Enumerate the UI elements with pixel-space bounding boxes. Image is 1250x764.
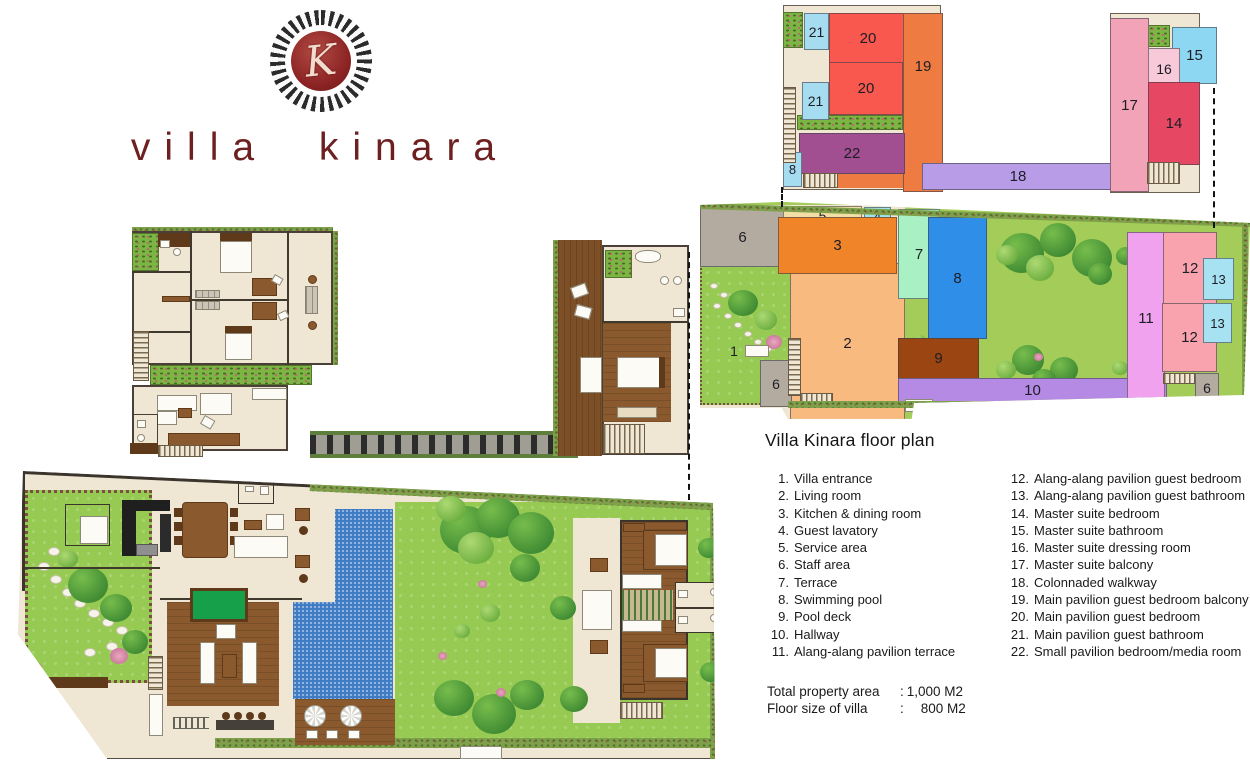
room-18: 18 (922, 163, 1114, 190)
porch (38, 677, 108, 688)
daybed (580, 357, 602, 393)
legend-item-number: 19. (1002, 591, 1029, 608)
legend-item-number: 16. (1002, 539, 1029, 556)
stairs (133, 331, 149, 381)
bed (655, 534, 687, 566)
daybed (622, 620, 662, 632)
stairs (148, 656, 163, 690)
bush-icon (700, 662, 722, 682)
toilet (137, 420, 146, 428)
plot-wall (22, 471, 25, 591)
flower-bush-icon (28, 662, 42, 674)
planter-pot (590, 558, 608, 572)
villa-kinara-logo: K (270, 10, 372, 112)
legend-item-label: Hallway (794, 626, 840, 643)
property-totals: Total property area:1,000 M2Floor size o… (767, 683, 966, 717)
bathroom (132, 414, 158, 446)
room-number-label: 21 (808, 94, 824, 108)
entrance-gate (460, 746, 502, 759)
chair (174, 508, 182, 517)
dashed-connector-left (688, 252, 690, 500)
chair (174, 536, 182, 545)
table-round (308, 275, 317, 284)
stool (246, 712, 254, 720)
appliance (136, 544, 158, 556)
legend-item-number: 12. (1002, 470, 1029, 487)
legend-item-label: Small pavilion bedroom/media room (1034, 643, 1241, 660)
legend-item-label: Colonnaded walkway (1034, 574, 1157, 591)
chair (230, 508, 238, 517)
room-number-label: 10 (1024, 383, 1041, 398)
bush-icon (698, 538, 720, 558)
kitchen-island (160, 514, 171, 552)
deck-table (216, 624, 236, 639)
dresser (623, 684, 645, 693)
kitchen-counter (122, 500, 170, 511)
legend-item-label: Living room (794, 487, 861, 504)
legend-item-number: 14. (1002, 505, 1029, 522)
planter-box (783, 12, 803, 48)
legend-item-number: 13. (1002, 487, 1029, 504)
legend-item-label: Main pavilion guest bedroom (1034, 608, 1200, 625)
room-3: 3 (778, 217, 897, 274)
sink (173, 248, 181, 256)
palm-tree-icon (1088, 263, 1112, 285)
stepping-stone (50, 575, 62, 584)
daybed (622, 574, 662, 589)
wall (25, 567, 160, 569)
parasol-icon (304, 705, 326, 727)
planter-box (1147, 25, 1170, 47)
legend-item-label: Guest lavatory (794, 522, 878, 539)
legend-item-number: 21. (1002, 626, 1029, 643)
legend-item-number: 9. (765, 608, 789, 625)
total-value: 1,000 M2 (904, 684, 963, 699)
legend-item: 6.Staff area (765, 556, 1002, 573)
legend-item-label: Main pavilion guest bedroom balcony (1034, 591, 1249, 608)
flower-bush-icon (478, 580, 487, 588)
wardrobe (305, 286, 318, 314)
legend-item: 4.Guest lavatory (765, 522, 1002, 539)
room-number-label: 6 (738, 230, 746, 245)
deck-chair (348, 730, 360, 739)
legend-item-number: 5. (765, 539, 789, 556)
chair (174, 522, 182, 531)
room-number-label: 20 (858, 81, 875, 96)
stairs (803, 173, 838, 188)
room-8g: 8 (928, 217, 987, 339)
legend-item: 15.Master suite bathroom (1002, 522, 1249, 539)
room-20b: 20 (829, 62, 903, 115)
bathtub (635, 250, 661, 263)
room-21b: 21 (802, 82, 829, 120)
toilet (673, 308, 685, 317)
legend-column-right: 12.Alang-alang pavilion guest bedroom13.… (1002, 470, 1249, 660)
room-number-label: 14 (1166, 116, 1183, 131)
flower-bush-icon (110, 648, 128, 664)
wall (190, 231, 192, 365)
legend-item: 21.Main pavilion guest bathroom (1002, 626, 1249, 643)
legend-item-number: 20. (1002, 608, 1029, 625)
tree-icon (68, 567, 108, 603)
stool (222, 712, 230, 720)
tree-icon (728, 290, 758, 316)
sink (660, 276, 669, 285)
room-20a: 20 (829, 13, 907, 64)
legend-item: 5.Service area (765, 539, 1002, 556)
room-number-label: 2 (843, 336, 851, 351)
rack (173, 717, 209, 729)
plan-upper-floor-schematic: 21202019212281817151614 (783, 5, 1250, 190)
legend-item-number: 8. (765, 591, 789, 608)
tree-icon (1040, 223, 1076, 257)
legend-item-label: Terrace (794, 574, 837, 591)
legend-item-label: Alang-alang pavilion guest bedroom (1034, 470, 1241, 487)
legend-item: 12.Alang-alang pavilion guest bedroom (1002, 470, 1249, 487)
toilet (678, 590, 688, 598)
legend-item-number: 11. (765, 643, 789, 660)
room-13b: 13 (1203, 303, 1232, 343)
bed (80, 516, 108, 544)
legend-item: 7.Terrace (765, 574, 1002, 591)
flower-bush-icon (1034, 353, 1043, 361)
bed (655, 648, 687, 678)
entrance-gate (745, 345, 769, 357)
planter-box (605, 250, 632, 278)
bed-headboard (225, 326, 252, 333)
legend-item-label: Staff area (794, 556, 850, 573)
legend-item-number: 10. (765, 626, 789, 643)
stepping-stone (720, 292, 728, 298)
planter-strip (150, 365, 312, 385)
legend-item-label: Master suite bathroom (1034, 522, 1163, 539)
parasol-icon (340, 705, 362, 727)
bush-icon (480, 604, 500, 622)
hedge-border (788, 401, 1245, 408)
bush-icon (1112, 361, 1128, 375)
legend-item: 10.Hallway (765, 626, 1002, 643)
legend-item: 14.Master suite bedroom (1002, 505, 1249, 522)
tree-icon (755, 310, 777, 330)
table-round (299, 574, 308, 583)
room-9: 9 (898, 338, 979, 379)
sofa (234, 536, 288, 558)
wordmark: villa kinara (118, 126, 522, 170)
legend-item-number: 3. (765, 505, 789, 522)
legend-item-number: 4. (765, 522, 789, 539)
balcony-deck (558, 240, 602, 456)
legend-item: 2.Living room (765, 487, 1002, 504)
legend-item: 11.Alang-alang pavilion terrace (765, 643, 1002, 660)
terrace-chair (295, 555, 310, 568)
billiard-table (190, 588, 248, 622)
tree-icon (436, 496, 466, 522)
room-number-label: 22 (844, 146, 861, 161)
logo-medallion: K (291, 31, 351, 91)
stepping-stone (744, 331, 752, 337)
dashed-connector-right (1213, 88, 1215, 228)
room-number-label: 9 (934, 351, 942, 366)
stepping-stone (88, 609, 100, 618)
room-14: 14 (1148, 82, 1200, 165)
legend-item-number: 6. (765, 556, 789, 573)
room-number-label: 8 (953, 271, 961, 286)
coffee-table (244, 520, 262, 530)
room-number-label: 18 (1010, 169, 1027, 184)
tree-icon (100, 594, 132, 622)
stairs (788, 338, 801, 396)
room-11: 11 (1127, 232, 1165, 404)
legend-panel: Villa Kinara floor plan 1.Villa entrance… (765, 430, 1250, 730)
total-label: Total property area (767, 683, 900, 700)
stairs (1163, 373, 1195, 384)
room-number-label: 20 (860, 31, 877, 46)
terrace-daybed (582, 590, 612, 630)
legend-title: Villa Kinara floor plan (765, 430, 1250, 451)
legend-item-label: Main pavilion guest bathroom (1034, 626, 1204, 643)
legend-item-label: Alang-alang pavilion terrace (794, 643, 955, 660)
bed (225, 333, 252, 360)
room-number-label: 16 (1156, 62, 1172, 76)
bed-headboard (659, 357, 665, 388)
room-number-label: 13 (1210, 317, 1224, 330)
legend-item-label: Swimming pool (794, 591, 882, 608)
sink (710, 588, 718, 596)
tree-icon (510, 680, 544, 710)
room-number-label: 6 (772, 377, 780, 391)
coffee-table (178, 408, 192, 418)
swimming-pool (293, 509, 393, 699)
room-6a: 6 (700, 207, 785, 267)
tree-icon (1026, 255, 1054, 281)
hedge-border (132, 227, 333, 231)
plan-upper-floor-detailed (25, 218, 695, 466)
room-number-label: 19 (915, 59, 932, 74)
flower-bush-icon (496, 688, 506, 697)
plot-wall (107, 758, 715, 761)
armchair (266, 514, 284, 530)
deck-chair (326, 730, 338, 739)
stepping-stone (84, 648, 96, 657)
legend-item: 22.Small pavilion bedroom/media room (1002, 643, 1249, 660)
colonnaded-walkway (310, 431, 578, 458)
planter-box (132, 233, 159, 271)
room-21a: 21 (804, 13, 829, 50)
tree-icon (472, 694, 516, 734)
sofa (252, 388, 287, 400)
table-round (308, 321, 317, 330)
deck-chair (306, 730, 318, 739)
palm-tree-icon (560, 686, 588, 712)
legend-column-left: 1.Villa entrance2.Living room3.Kitchen &… (765, 470, 1002, 660)
room-number-label: 21 (809, 25, 825, 39)
stairs (603, 424, 645, 454)
legend-item: 1.Villa entrance (765, 470, 1002, 487)
legend-item: 16.Master suite dressing room (1002, 539, 1249, 556)
total-value: 800 M2 (904, 701, 966, 716)
stepping-stone (713, 303, 721, 309)
legend-item-number: 15. (1002, 522, 1029, 539)
desk (252, 302, 277, 320)
sink (673, 276, 682, 285)
deck-table (222, 654, 237, 678)
room-number-label: 3 (833, 238, 841, 253)
room-number-label: 1 (730, 344, 738, 358)
room-number-label: 17 (1121, 98, 1138, 113)
mats (622, 590, 673, 620)
tree-icon (996, 245, 1018, 265)
terrace-chair (295, 508, 310, 521)
total-row: Floor size of villa:800 M2 (767, 700, 966, 717)
legend-item-label: Master suite balcony (1034, 556, 1153, 573)
wall (287, 231, 289, 365)
room-number-label: 6 (1203, 381, 1211, 395)
bar-bench (216, 720, 274, 730)
stepping-stone (710, 283, 718, 289)
room-22: 22 (799, 133, 905, 174)
room-number-label: 13 (1211, 273, 1225, 286)
bed-headboard (220, 233, 252, 241)
stairs (1147, 162, 1180, 184)
flower-bush-icon (438, 652, 447, 660)
plan-ground-floor-schematic: 65423789101112121313661 (700, 195, 1250, 423)
legend-item-number: 2. (765, 487, 789, 504)
legend-item: 19.Main pavilion guest bedroom balcony (1002, 591, 1249, 608)
legend-item: 17.Master suite balcony (1002, 556, 1249, 573)
plan-ground-floor-detailed (10, 462, 720, 764)
bush-icon (454, 624, 470, 638)
legend-item-label: Master suite dressing room (1034, 539, 1191, 556)
legend-item-number: 18. (1002, 574, 1029, 591)
legend-item: 9.Pool deck (765, 608, 1002, 625)
chair (230, 522, 238, 531)
bench (162, 296, 190, 302)
legend-item-number: 1. (765, 470, 789, 487)
hedge-border (333, 231, 338, 365)
stairs (620, 702, 663, 719)
legend-item: 3.Kitchen & dining room (765, 505, 1002, 522)
dashed-connector-mid (781, 187, 783, 207)
room-17: 17 (1110, 18, 1149, 192)
sink (137, 434, 145, 442)
cabinet (149, 694, 163, 736)
stairs (783, 87, 796, 163)
bed (617, 357, 662, 388)
stool (258, 712, 266, 720)
bench (617, 407, 657, 418)
planter-pot (590, 640, 608, 654)
room-number-label: 12 (1181, 330, 1198, 345)
bed (220, 241, 252, 273)
legend-item-label: Pool deck (794, 608, 851, 625)
toilet (260, 486, 269, 495)
wardrobe (195, 301, 220, 310)
dining-table (182, 502, 228, 558)
legend-item: 13.Alang-alang pavilion guest bathroom (1002, 487, 1249, 504)
room-13a: 13 (1203, 258, 1234, 300)
room-number-label: 12 (1182, 261, 1199, 276)
daybed (200, 393, 232, 415)
stepping-stone (734, 322, 742, 328)
room-number-label: 7 (915, 247, 923, 262)
porch (130, 443, 158, 454)
room-number-label: 11 (1138, 311, 1154, 326)
legend-item: 20.Main pavilion guest bedroom (1002, 608, 1249, 625)
palm-tree-icon (550, 596, 576, 620)
legend-item-number: 7. (765, 574, 789, 591)
wardrobe (195, 290, 220, 298)
hedge-border (1242, 223, 1248, 395)
toilet (160, 240, 170, 248)
stool (234, 712, 242, 720)
legend-item-number: 17. (1002, 556, 1029, 573)
room-number-label: 15 (1186, 48, 1203, 63)
tree-icon (434, 680, 474, 716)
legend-item: 8.Swimming pool (765, 591, 1002, 608)
room-1: 1 (724, 343, 744, 359)
stepping-stone (724, 313, 732, 319)
toilet (678, 616, 688, 624)
legend-item-label: Villa entrance (794, 470, 873, 487)
room-number-label: 8 (789, 163, 796, 176)
sofa-chaise (157, 411, 177, 425)
tree-icon (458, 532, 494, 564)
total-label: Floor size of villa (767, 700, 900, 717)
legend-item-label: Master suite bedroom (1034, 505, 1160, 522)
sink (245, 486, 254, 492)
legend-item-number: 22. (1002, 643, 1029, 660)
legend-item-label: Alang-alang pavilion guest bathroom (1034, 487, 1245, 504)
logo-monogram: K (303, 38, 339, 83)
legend-item-label: Kitchen & dining room (794, 505, 921, 522)
legend-list: 1.Villa entrance2.Living room3.Kitchen &… (765, 470, 1249, 660)
tree-icon (996, 361, 1016, 379)
table-round (299, 526, 308, 535)
lounger (242, 642, 257, 684)
sink (710, 614, 718, 622)
dresser (623, 523, 645, 532)
total-row: Total property area:1,000 M2 (767, 683, 966, 700)
stairs (158, 445, 203, 457)
bush-icon (58, 550, 78, 568)
legend-item-label: Service area (794, 539, 867, 556)
tree-icon (508, 512, 554, 554)
wall (132, 271, 190, 273)
palm-tree-icon (510, 554, 540, 582)
legend-item: 18.Colonnaded walkway (1002, 574, 1249, 591)
room-6c: 6 (1195, 373, 1219, 402)
wall (675, 607, 720, 609)
lounger (200, 642, 215, 684)
